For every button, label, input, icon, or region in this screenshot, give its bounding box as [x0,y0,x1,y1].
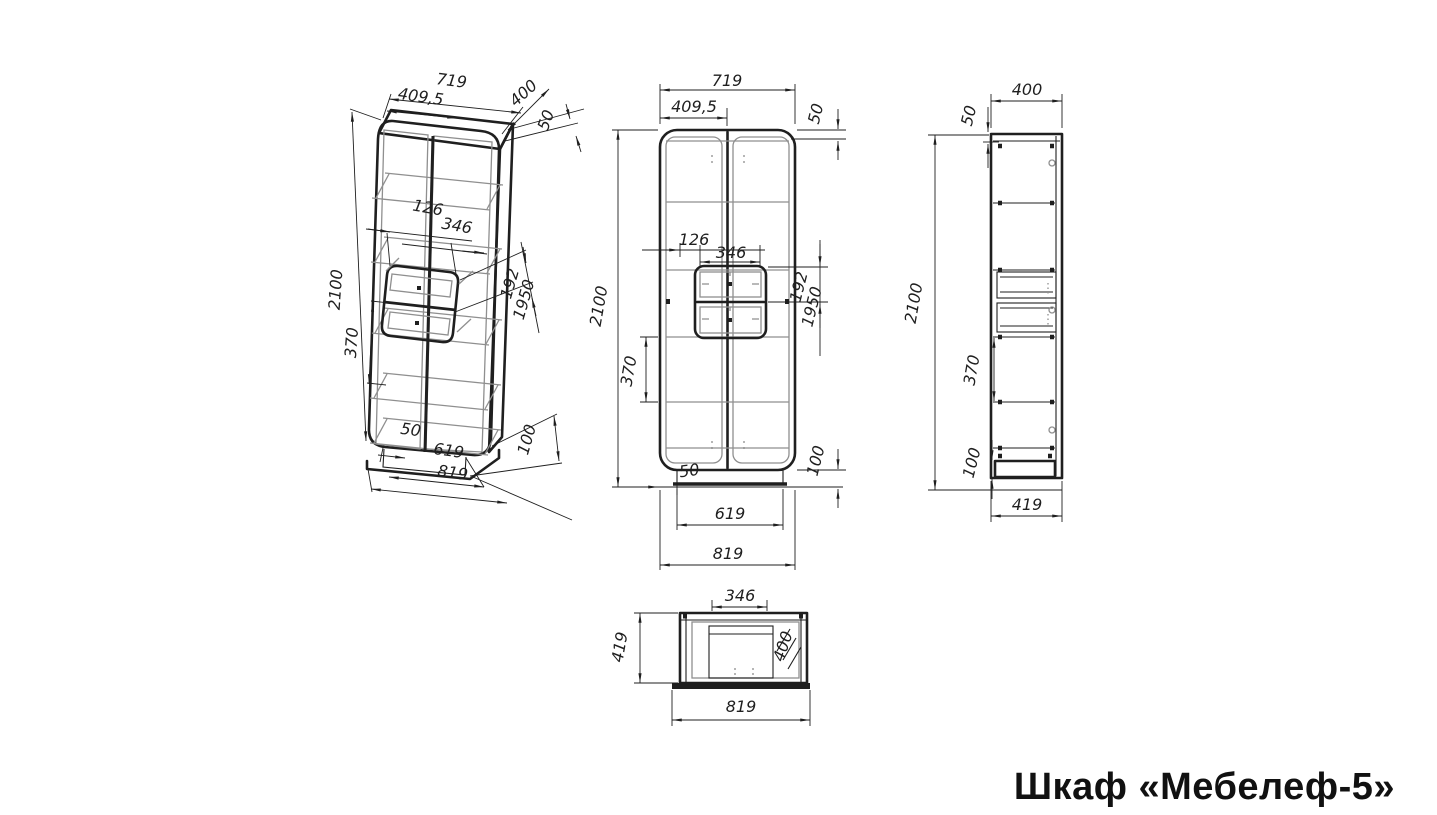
side-dim-top-panel: 50 [957,103,980,127]
technical-drawing: 719 409,5 400 50 2100 370 126 346 192 19… [0,0,1437,815]
iso-dim-plinth-width: 619 [432,439,465,462]
iso-dim-depth: 400 [506,76,541,111]
front-dim-drawer-width: 346 [716,243,747,262]
blueprint-page: 719 409,5 400 50 2100 370 126 346 192 19… [0,0,1437,815]
iso-dim-drawer-offset: 126 [411,196,444,220]
iso-dim-width: 719 [435,69,468,92]
iso-dim-height: 2100 [325,269,347,311]
side-dim-plinth-height: 100 [959,446,985,480]
iso-dim-plinth-inset: 50 [399,419,422,441]
top-dim-drawer-width: 346 [725,586,756,605]
iso-geometry [350,89,584,520]
front-dim-plinth-inset: 50 [678,460,701,482]
iso-dim-plinth-height: 100 [513,422,540,457]
front-dim-plinth-width: 619 [715,504,746,523]
side-geometry [928,94,1062,522]
side-dim-shelf-spacing: 370 [960,353,984,386]
top-view: 346 419 400 819 [608,586,810,726]
top-dim-base-depth: 419 [608,630,632,663]
front-dim-width: 719 [712,71,743,90]
side-dim-depth: 400 [1012,80,1043,99]
front-dim-drawer-offset: 126 [679,230,710,249]
front-dim-top-panel: 50 [804,101,827,125]
front-dim-shelf-spacing: 370 [617,354,641,387]
side-dim-base-depth: 419 [1012,495,1043,514]
drawing-title: Шкаф «Мебелеф-5» [1014,766,1395,809]
iso-dim-shelf-spacing: 370 [341,327,362,359]
side-view: 400 50 2100 370 100 419 [901,80,1062,522]
side-dim-height: 2100 [901,281,927,324]
front-dim-plinth-height: 100 [803,444,829,478]
front-dim-base-width: 819 [713,544,744,563]
top-dim-base-width: 819 [726,697,757,716]
iso-dim-base-width: 819 [436,461,469,484]
iso-dim-drawer-width: 346 [440,214,473,238]
front-dim-height: 2100 [586,284,612,327]
iso-view: 719 409,5 400 50 2100 370 126 346 192 19… [325,69,584,520]
front-view: 719 409,5 50 2100 370 126 346 192 1950 5… [586,71,846,570]
front-dim-half-width: 409,5 [671,97,717,116]
